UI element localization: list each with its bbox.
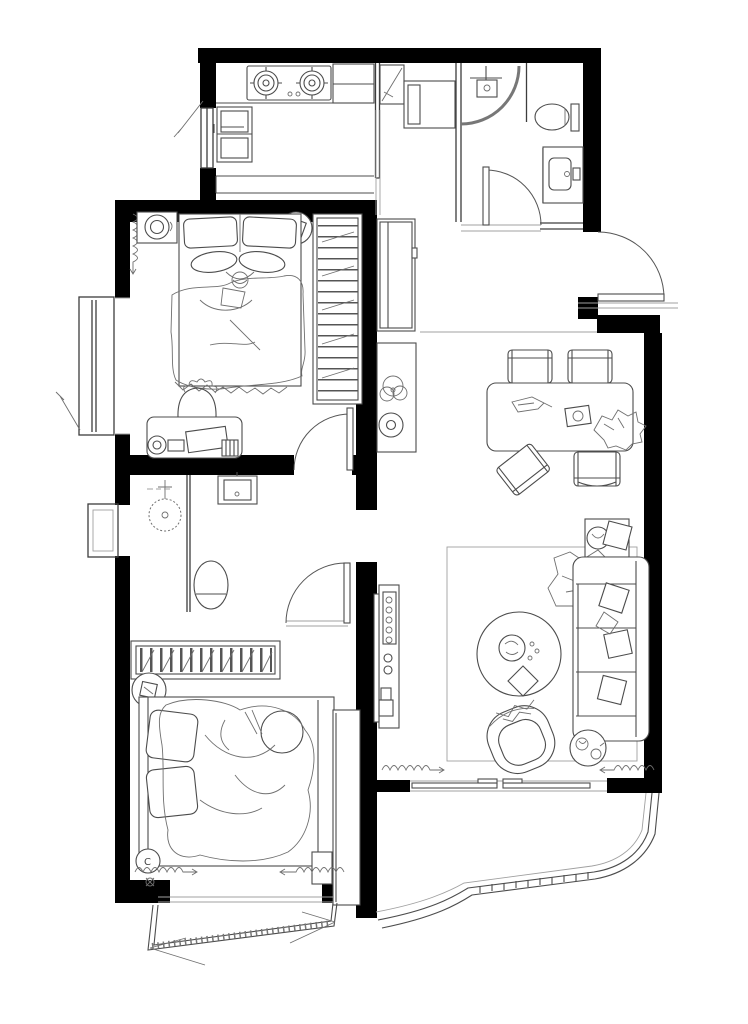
bay-window-bottom (148, 897, 337, 965)
dining-chair (568, 350, 612, 383)
hall-decor-shelf (377, 343, 416, 452)
bay-window-west (56, 297, 130, 435)
armchair (479, 696, 563, 781)
bathroom-top-door (483, 167, 541, 225)
tv-icon (374, 594, 379, 722)
hall-tall-cabinet (380, 65, 404, 104)
washbasin-unit (218, 472, 257, 504)
side-table (570, 730, 606, 766)
dining-table (487, 350, 646, 497)
window-west-small (88, 504, 118, 557)
dining-chair (508, 350, 552, 383)
cushion (597, 675, 626, 704)
entry-door (598, 232, 664, 301)
hall-storage-box (404, 81, 455, 128)
curtain-icon (130, 214, 138, 274)
kitchen-tall-cabinet (333, 64, 374, 103)
bedroom-bottom: C (132, 673, 360, 965)
stove-icon (247, 66, 331, 100)
desk (147, 417, 242, 458)
closet-marker-label: C (144, 857, 151, 868)
nightstand (137, 212, 177, 243)
coffee-table (477, 612, 561, 696)
shower-head (147, 480, 181, 531)
sofa (548, 550, 649, 741)
bathroom-middle-door (286, 563, 350, 623)
wardrobe-top (313, 214, 362, 404)
refrigerator-icon (214, 107, 252, 162)
dining-chair (574, 452, 620, 486)
bathroom-top (461, 66, 583, 225)
bedroom-top (56, 212, 362, 470)
tv-console (374, 585, 399, 728)
toilet-icon (194, 561, 228, 609)
sliding-door (412, 779, 590, 788)
cushion (604, 630, 632, 658)
floor-plan-drawing: C (0, 0, 748, 1024)
bedroom-top-door (294, 408, 353, 470)
hall-wardrobe (377, 219, 417, 331)
plant-table (585, 519, 632, 557)
vanity-sink (543, 147, 583, 203)
toilet-icon (535, 104, 579, 131)
floor-plan-canvas: C (0, 0, 748, 1024)
balcony (376, 793, 659, 928)
kitchen-counter (216, 176, 374, 193)
corner-shower (461, 66, 519, 124)
kitchen-window (174, 101, 213, 168)
bed-bottom (139, 697, 334, 866)
bed-top (171, 214, 305, 394)
